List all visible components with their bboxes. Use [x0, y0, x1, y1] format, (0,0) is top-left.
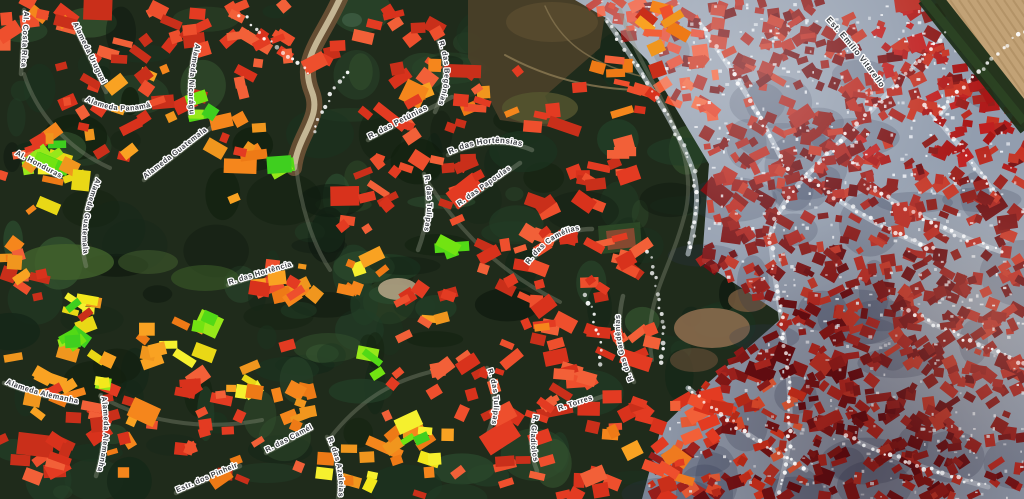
building-footprint[interactable]: [670, 401, 680, 411]
ribbon-speckle: [986, 61, 990, 65]
ribbon-speckle: [921, 467, 926, 472]
ribbon-speckle: [937, 324, 940, 327]
ribbon-speckle: [657, 298, 660, 301]
ribbon-speckle: [958, 143, 961, 146]
ribbon-speckle: [891, 202, 894, 205]
ribbon-speckle: [800, 177, 803, 180]
ribbon-speckle: [694, 212, 698, 216]
ribbon-speckle: [255, 28, 258, 31]
ribbon-speckle: [957, 333, 960, 336]
building-footprint[interactable]: [63, 97, 72, 106]
ribbon-speckle: [966, 239, 969, 242]
ribbon-speckle: [775, 284, 779, 288]
ribbon-speckle: [786, 359, 788, 361]
ribbon-speckle: [962, 149, 965, 152]
ribbon-speckle: [705, 35, 707, 37]
building-footprint[interactable]: [411, 22, 426, 33]
ribbon-speckle: [790, 458, 793, 461]
ribbon-speckle: [962, 86, 966, 90]
ribbon-speckle: [805, 172, 808, 175]
ribbon-speckle: [598, 362, 602, 366]
ribbon-speckle: [662, 332, 665, 335]
forest-blob: [143, 285, 173, 303]
ribbon-speckle: [843, 132, 846, 135]
building-footprint[interactable]: [423, 466, 434, 478]
building-footprint[interactable]: [428, 59, 441, 72]
ribbon-speckle: [782, 344, 786, 348]
ribbon-speckle: [844, 433, 849, 438]
building-footprint[interactable]: [0, 12, 13, 26]
building-footprint[interactable]: [10, 454, 30, 466]
ribbon-speckle: [694, 190, 698, 194]
ribbon-speckle: [781, 205, 785, 209]
building-footprint[interactable]: [495, 455, 515, 467]
building-footprint[interactable]: [315, 467, 333, 481]
ribbon-speckle: [971, 76, 974, 79]
ribbon-speckle: [886, 96, 889, 99]
building-footprint[interactable]: [330, 186, 359, 206]
terrain-patch: [342, 13, 362, 27]
ribbon-speckle: [772, 143, 774, 145]
ribbon-speckle: [651, 265, 655, 269]
building-footprint[interactable]: [65, 412, 81, 424]
ribbon-speckle: [996, 349, 1000, 353]
ribbon-speckle: [622, 48, 626, 52]
ribbon-speckle: [723, 59, 726, 62]
ribbon-speckle: [922, 218, 925, 221]
building-footprint[interactable]: [359, 451, 374, 463]
ribbon-speckle: [936, 471, 939, 474]
ribbon-speckle: [685, 152, 688, 155]
forest-blob: [53, 485, 73, 499]
forest-blob: [7, 98, 26, 137]
building-footprint[interactable]: [118, 467, 129, 478]
building-footprint[interactable]: [98, 377, 110, 388]
ribbon-speckle: [654, 276, 657, 279]
ribbon-speckle: [346, 71, 350, 75]
ribbon-speckle: [851, 204, 855, 208]
building-footprint[interactable]: [499, 238, 511, 252]
ribbon-speckle: [786, 200, 789, 203]
building-footprint[interactable]: [215, 390, 226, 399]
ribbon-speckle: [1011, 37, 1013, 39]
ribbon-speckle: [772, 265, 775, 268]
ribbon-speckle: [719, 412, 724, 417]
ribbon-speckle: [918, 242, 923, 247]
ribbon-speckle: [913, 313, 917, 317]
ribbon-speckle: [956, 475, 961, 480]
ribbon-speckle: [783, 456, 786, 459]
ribbon-speckle: [342, 76, 344, 78]
ribbon-speckle: [788, 381, 791, 384]
ribbon-speckle: [784, 462, 788, 466]
ribbon-speckle: [858, 441, 861, 444]
ribbon-speckle: [295, 61, 299, 65]
ribbon-speckle: [918, 212, 922, 216]
ribbon-speckle: [906, 308, 911, 313]
ribbon-speckle: [892, 87, 895, 90]
ribbon-speckle: [1006, 44, 1010, 48]
ribbon-speckle: [904, 235, 908, 239]
ribbon-speckle: [692, 184, 696, 188]
ribbon-speckle: [768, 241, 772, 245]
ribbon-speckle: [262, 37, 265, 40]
ribbon-speckle: [772, 275, 774, 277]
ribbon-speckle: [766, 446, 769, 449]
ribbon-speckle: [598, 356, 601, 359]
ribbon-speckle: [661, 320, 665, 324]
ribbon-speckle: [630, 54, 632, 56]
building-footprint[interactable]: [634, 105, 646, 114]
ribbon-speckle: [636, 64, 640, 68]
ribbon-speckle: [787, 421, 790, 424]
building-footprint[interactable]: [139, 323, 155, 336]
ribbon-speckle: [328, 100, 330, 102]
ribbon-speckle: [965, 154, 967, 156]
ribbon-speckle: [977, 483, 980, 486]
building-footprint[interactable]: [523, 120, 542, 133]
ribbon-speckle: [880, 100, 884, 104]
ribbon-speckle: [911, 210, 915, 214]
ribbon-speckle: [777, 452, 780, 455]
building-footprint[interactable]: [189, 7, 206, 20]
ribbon-speckle: [968, 338, 973, 343]
ribbon-speckle: [888, 227, 892, 231]
ribbon-speckle: [258, 31, 261, 34]
ribbon-speckle: [725, 418, 729, 422]
forest-blob: [505, 187, 523, 201]
ribbon-speckle: [884, 453, 886, 455]
ribbon-speckle: [600, 341, 603, 344]
ribbon-speckle: [672, 126, 676, 130]
ribbon-speckle: [785, 366, 789, 370]
ribbon-speckle: [597, 333, 600, 336]
building-footprint[interactable]: [428, 453, 442, 466]
ribbon-speckle: [1016, 32, 1021, 37]
ribbon-speckle: [873, 104, 877, 108]
building-footprint[interactable]: [607, 150, 629, 159]
building-footprint[interactable]: [602, 390, 621, 403]
ribbon-speckle: [913, 238, 917, 242]
ribbon-speckle: [758, 439, 763, 444]
ribbon-speckle: [939, 122, 941, 124]
ribbon-speckle: [874, 222, 877, 225]
building-footprint[interactable]: [46, 133, 54, 144]
ribbon-speckle: [986, 246, 990, 250]
ribbon-speckle: [695, 199, 698, 202]
ribbon-speckle: [751, 106, 755, 110]
ribbon-speckle: [793, 462, 797, 466]
ribbon-speckle: [876, 449, 880, 453]
ribbon-speckle: [862, 213, 866, 217]
ribbon-speckle: [771, 246, 776, 251]
ribbon-speckle: [303, 66, 306, 69]
building-footprint[interactable]: [111, 54, 128, 64]
ribbon-speckle: [656, 292, 660, 296]
ribbon-speckle: [804, 176, 807, 179]
ribbon-speckle: [591, 306, 593, 308]
building-footprint[interactable]: [441, 428, 454, 441]
ribbon-speckle: [740, 87, 743, 90]
ribbon-speckle: [761, 125, 764, 128]
ribbon-speckle: [709, 40, 712, 43]
ribbon-speckle: [686, 156, 688, 158]
ribbon-speckle: [863, 184, 865, 186]
ribbon-speckle: [784, 351, 788, 355]
building-footprint[interactable]: [341, 444, 357, 453]
building-footprint[interactable]: [226, 385, 236, 392]
ribbon-speckle: [863, 118, 865, 120]
ribbon-speckle: [862, 444, 866, 448]
building-footprint[interactable]: [253, 58, 263, 68]
building-footprint[interactable]: [553, 368, 574, 380]
ribbon-speckle: [786, 434, 790, 438]
ribbon-speckle: [832, 196, 836, 200]
ribbon-speckle: [995, 247, 997, 249]
ribbon-speckle: [839, 139, 843, 143]
building-footprint[interactable]: [390, 61, 405, 76]
ribbon-speckle: [783, 471, 787, 475]
ribbon-speckle: [852, 128, 855, 131]
ribbon-speckle: [780, 336, 785, 341]
building-footprint[interactable]: [224, 158, 257, 174]
ribbon-speckle: [855, 210, 858, 213]
ribbon-speckle: [606, 20, 609, 23]
ribbon-speckle: [695, 206, 698, 209]
building-footprint[interactable]: [221, 426, 234, 435]
ribbon-speckle: [600, 349, 603, 352]
terrain-patch: [118, 250, 178, 274]
ribbon-speckle: [756, 111, 760, 115]
ribbon-speckle: [747, 94, 750, 97]
ribbon-speckle: [817, 161, 820, 164]
ribbon-speckle: [930, 467, 934, 471]
ribbon-speckle: [307, 72, 309, 74]
building-footprint[interactable]: [330, 40, 346, 51]
ribbon-speckle: [778, 309, 781, 312]
building-footprint[interactable]: [16, 432, 55, 458]
ribbon-speckle: [746, 433, 751, 438]
ribbon-speckle: [976, 69, 981, 74]
ribbon-speckle: [714, 44, 719, 49]
ribbon-speckle: [900, 307, 903, 310]
ribbon-speckle: [291, 57, 294, 60]
ribbon-speckle: [984, 483, 986, 485]
terrain-patch: [506, 2, 598, 42]
building-footprint[interactable]: [453, 93, 469, 107]
building-footprint[interactable]: [7, 255, 23, 270]
ribbon-speckle: [1000, 250, 1003, 253]
ribbon-speckle: [779, 304, 782, 307]
ribbon-speckle: [929, 47, 933, 51]
ribbon-speckle: [921, 314, 924, 317]
ribbon-speckle: [669, 120, 672, 123]
ribbon-speckle: [927, 318, 930, 321]
ribbon-speckle: [732, 72, 736, 76]
ribbon-speckle: [779, 323, 783, 327]
building-footprint[interactable]: [65, 335, 81, 349]
ribbon-speckle: [703, 27, 707, 31]
ribbon-speckle: [917, 96, 920, 99]
ribbon-speckle: [659, 354, 664, 359]
ribbon-speckle: [699, 22, 702, 25]
ribbon-speckle: [951, 137, 956, 142]
ribbon-speckle: [1016, 361, 1020, 365]
ribbon-speckle: [786, 456, 789, 459]
building-footprint[interactable]: [441, 163, 454, 174]
ribbon-speckle: [788, 387, 791, 390]
ribbon-speckle: [781, 159, 783, 161]
ribbon-speckle: [898, 77, 901, 80]
ribbon-speckle: [893, 231, 897, 235]
ribbon-speckle: [270, 40, 272, 42]
ribbon-speckle: [787, 409, 790, 412]
ribbon-speckle: [840, 199, 843, 202]
ribbon-speckle: [942, 106, 946, 110]
ribbon-speckle: [736, 81, 740, 85]
ribbon-speckle: [333, 86, 336, 89]
ribbon-speckle: [780, 483, 782, 485]
building-footprint[interactable]: [460, 154, 476, 162]
building-footprint[interactable]: [266, 155, 292, 174]
ribbon-speckle: [951, 95, 953, 97]
ribbon-speckle: [286, 55, 290, 59]
ribbon-speckle: [693, 169, 698, 174]
building-footprint[interactable]: [182, 24, 197, 36]
ribbon-speckle: [752, 438, 755, 441]
ribbon-speckle: [825, 151, 829, 155]
ribbon-speckle: [996, 52, 1000, 56]
building-footprint[interactable]: [252, 123, 267, 133]
ribbon-speckle: [621, 40, 624, 43]
ribbon-speckle: [948, 133, 951, 136]
building-footprint[interactable]: [83, 0, 113, 20]
building-footprint[interactable]: [71, 169, 91, 191]
ribbon-speckle: [992, 187, 995, 190]
ribbon-speckle: [320, 110, 324, 114]
ribbon-speckle: [687, 241, 690, 244]
ribbon-speckle: [323, 105, 327, 109]
ribbon-speckle: [989, 57, 993, 61]
ribbon-speckle: [777, 490, 781, 494]
ribbon-speckle: [939, 110, 944, 115]
ribbon-speckle: [660, 312, 664, 316]
ribbon-speckle: [641, 72, 644, 75]
ribbon-speckle: [903, 207, 907, 211]
ribbon-speckle: [929, 112, 932, 115]
ribbon-speckle: [776, 296, 781, 301]
ribbon-speckle: [662, 325, 666, 329]
ribbon-speckle: [854, 121, 859, 126]
ribbon-speckle: [914, 61, 918, 65]
forest-blob: [257, 325, 277, 349]
ribbon-speckle: [976, 342, 981, 347]
ribbon-speckle: [328, 92, 332, 96]
ribbon-speckle: [650, 271, 654, 275]
ribbon-speckle: [655, 96, 659, 100]
map-viewport[interactable]: Al. Costa RicaAlameda UruguaiAlameda Nic…: [0, 0, 1024, 499]
ribbon-speckle: [808, 179, 812, 183]
ribbon-speckle: [781, 316, 785, 320]
ribbon-speckle: [743, 429, 747, 433]
ribbon-speckle: [888, 452, 893, 457]
ribbon-speckle: [945, 128, 949, 132]
building-footprint[interactable]: [245, 384, 264, 401]
ribbon-speckle: [866, 187, 869, 190]
ribbon-speckle: [822, 158, 825, 161]
ribbon-speckle: [963, 481, 966, 484]
ribbon-speckle: [817, 184, 821, 188]
ribbon-speckle: [693, 179, 695, 181]
building-footprint[interactable]: [545, 102, 561, 118]
ribbon-speckle: [925, 106, 928, 109]
building-footprint[interactable]: [592, 482, 610, 499]
ribbon-speckle: [896, 203, 899, 206]
building-footprint[interactable]: [644, 29, 662, 37]
ribbon-speckle: [768, 134, 772, 138]
ribbon-speckle: [772, 217, 776, 221]
ribbon-speckle: [781, 479, 784, 482]
ribbon-speckle: [615, 32, 619, 36]
ribbon-speckle: [769, 447, 772, 450]
ribbon-speckle: [844, 203, 847, 206]
forest-blob: [317, 343, 346, 367]
ribbon-speckle: [788, 396, 791, 399]
forest-blob: [349, 53, 373, 90]
ribbon-speckle: [873, 188, 877, 192]
ribbon-speckle: [980, 171, 983, 174]
ribbon-speckle: [940, 471, 945, 476]
ribbon-speckle: [823, 188, 825, 190]
ribbon-speckle: [586, 301, 591, 306]
ribbon-speckle: [924, 246, 929, 251]
ribbon-speckle: [934, 225, 937, 228]
ribbon-speckle: [691, 225, 695, 229]
terrain-patch: [670, 348, 718, 372]
ribbon-speckle: [788, 444, 792, 448]
building-footprint[interactable]: [572, 82, 587, 93]
building-footprint[interactable]: [191, 320, 205, 333]
ribbon-speckle: [886, 195, 890, 199]
ribbon-speckle: [314, 125, 316, 127]
ribbon-speckle: [969, 80, 972, 83]
ribbon-speckle: [950, 229, 954, 233]
ribbon-speckle: [904, 72, 908, 76]
ribbon-speckle: [748, 98, 753, 103]
ribbon-speckle: [810, 168, 814, 172]
ribbon-speckle: [275, 45, 280, 50]
ribbon-speckle: [918, 59, 922, 63]
ribbon-speckle: [797, 185, 801, 189]
building-footprint[interactable]: [606, 69, 625, 78]
map-canvas[interactable]: Al. Costa RicaAlameda UruguaiAlameda Nic…: [0, 0, 1024, 499]
ribbon-speckle: [836, 143, 839, 146]
building-footprint[interactable]: [515, 456, 530, 464]
ribbon-speckle: [955, 90, 959, 94]
ribbon-speckle: [983, 175, 988, 180]
ribbon-speckle: [932, 42, 935, 45]
ribbon-speckle: [673, 133, 677, 137]
ribbon-speckle: [792, 190, 795, 193]
ribbon-speckle: [645, 250, 649, 254]
ribbon-speckle: [915, 464, 919, 468]
ribbon-speckle: [827, 190, 831, 194]
ribbon-speckle: [991, 348, 994, 351]
ribbon-speckle: [595, 328, 598, 331]
ribbon-speckle: [871, 448, 874, 451]
ribbon-speckle: [682, 143, 686, 147]
ribbon-speckle: [779, 154, 784, 159]
